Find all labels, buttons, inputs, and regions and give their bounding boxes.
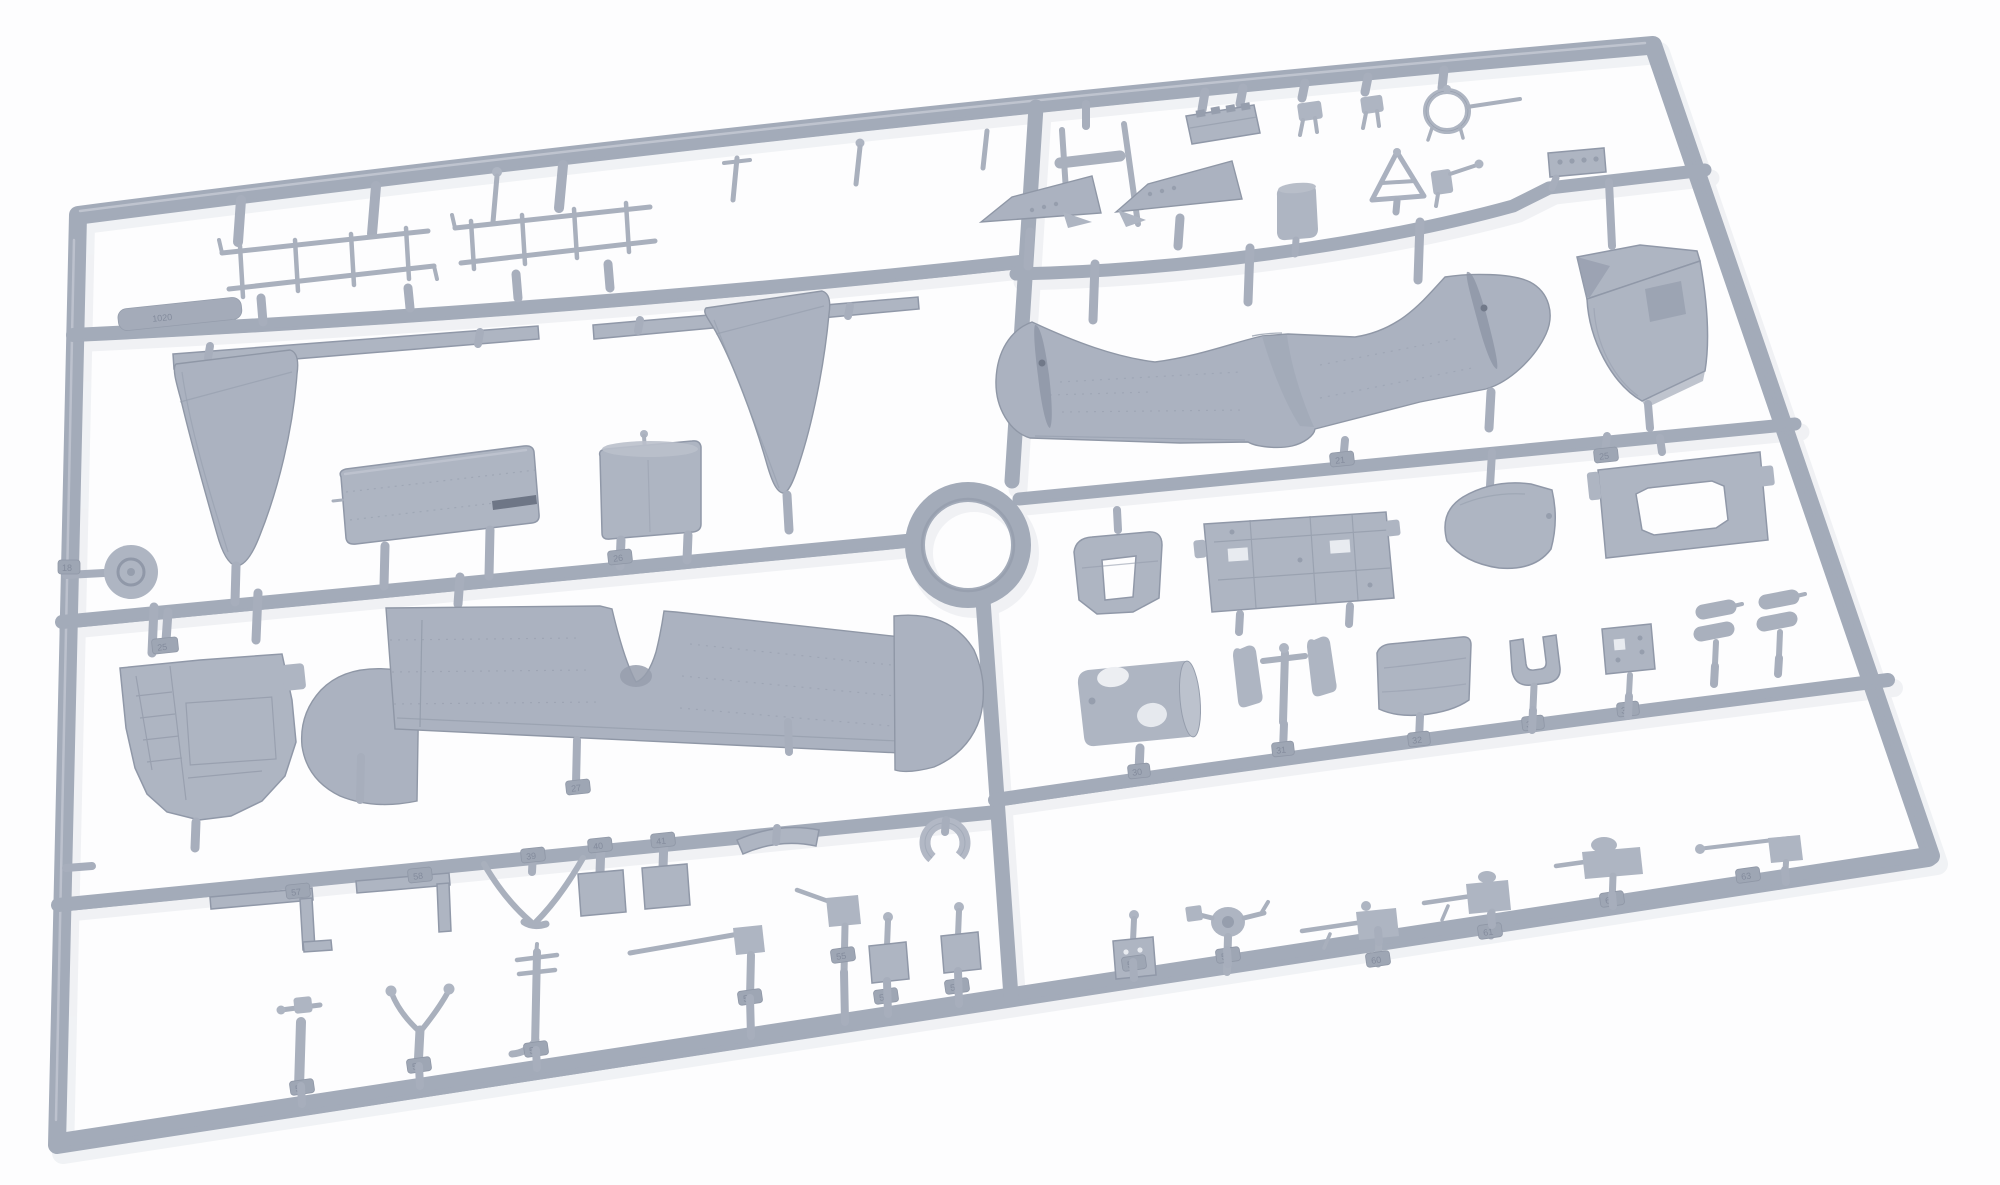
svg-text:1020: 1020 [152,312,173,324]
svg-text:55: 55 [836,951,847,962]
svg-text:63: 63 [1741,871,1752,882]
svg-text:21: 21 [1335,455,1346,466]
svg-text:58: 58 [413,871,424,882]
svg-text:57: 57 [291,887,302,898]
svg-text:25: 25 [157,642,168,653]
svg-text:39: 39 [526,851,537,862]
svg-text:31: 31 [1276,745,1287,756]
svg-text:18: 18 [62,563,72,573]
svg-text:25: 25 [1599,451,1610,462]
svg-text:30: 30 [1132,767,1143,778]
svg-text:41: 41 [656,836,667,847]
svg-text:32: 32 [1412,735,1423,746]
svg-text:27: 27 [571,783,582,794]
svg-text:40: 40 [593,841,604,852]
svg-text:60: 60 [1371,955,1382,966]
svg-text:26: 26 [613,553,624,564]
